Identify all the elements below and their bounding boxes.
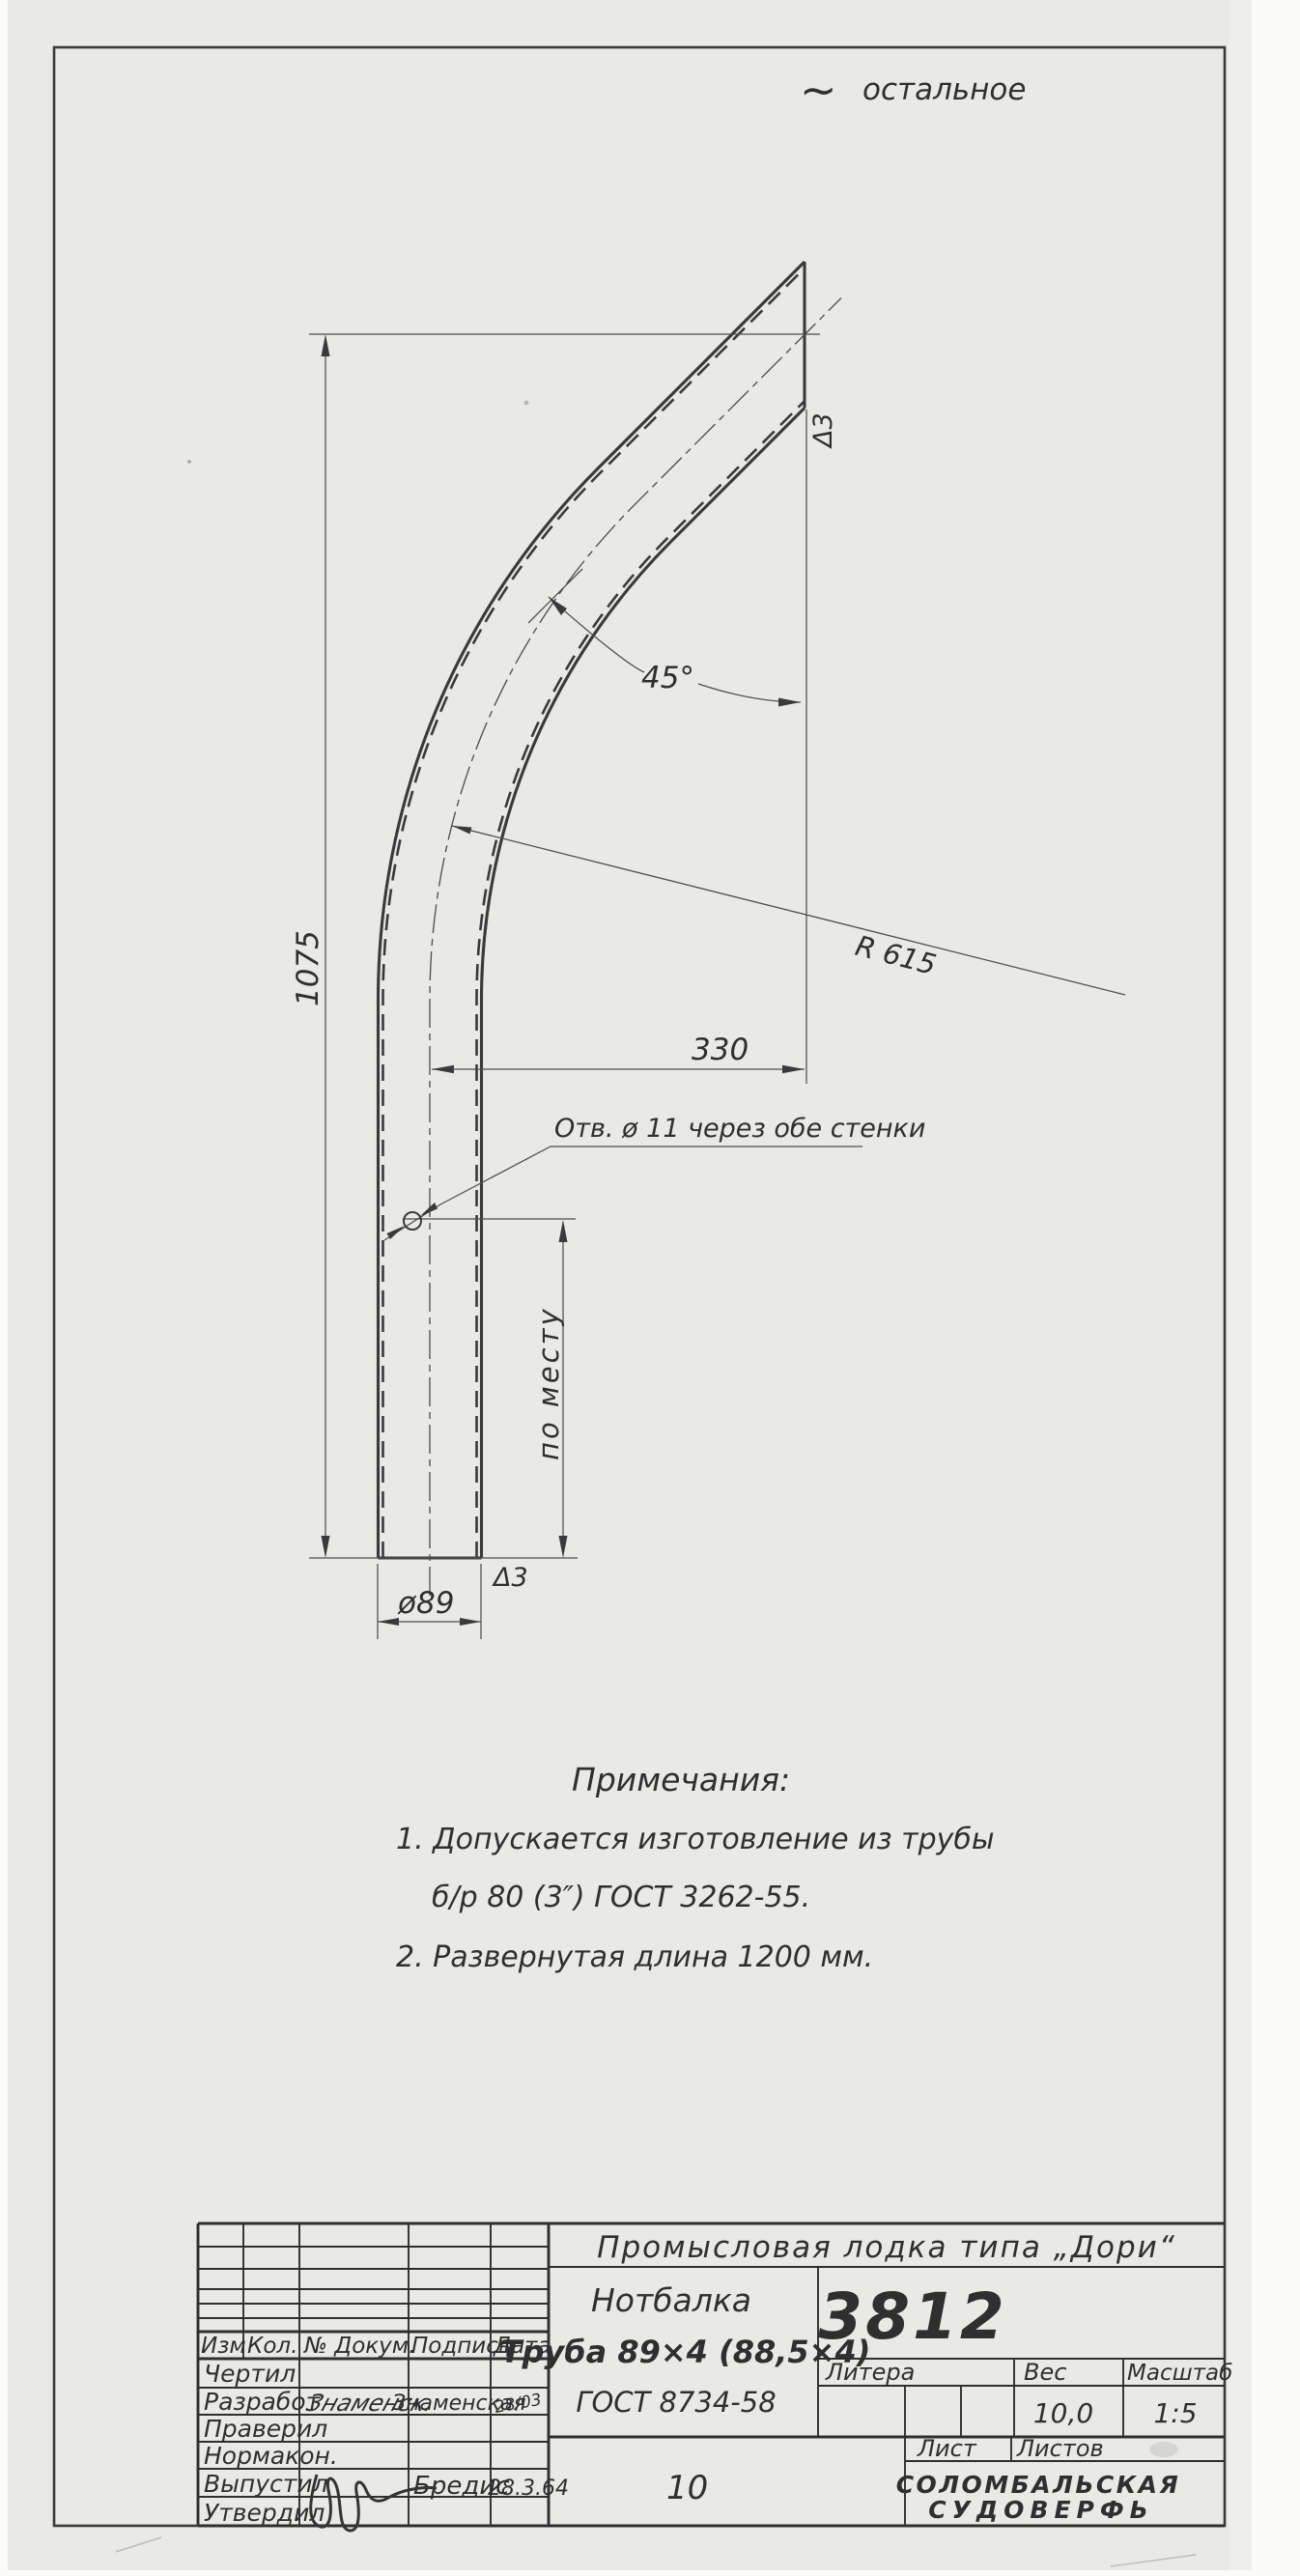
row-label-utverdil: Утвердил bbox=[204, 2499, 325, 2527]
scale-label: Масштаб bbox=[1127, 2361, 1232, 2386]
scanned-drawing-sheet: ∼ остальное bbox=[0, 0, 1300, 2576]
part-spec: Труба 89×4 (88,5×4) bbox=[501, 2334, 871, 2370]
col-header-data: Дата bbox=[493, 2334, 551, 2359]
sheet-number: 10 bbox=[666, 2469, 708, 2507]
row-label-razrabot: Разработ bbox=[204, 2388, 322, 2416]
col-header-izm: Изм bbox=[201, 2334, 246, 2359]
litera-label: Литера bbox=[825, 2359, 915, 2386]
paper-sheet bbox=[8, 0, 1252, 2570]
notes-title: Примечания: bbox=[572, 1761, 790, 1798]
scale-value: 1:5 bbox=[1153, 2397, 1197, 2429]
project-title: Промысловая лодка типа „Дори“ bbox=[597, 2230, 1176, 2265]
sheets-label: Листов bbox=[1016, 2435, 1104, 2462]
note-line-3: 2. Развернутая длина 1200 мм. bbox=[396, 1940, 873, 1974]
vypustil-date: 28.3.64 bbox=[488, 2477, 569, 2501]
finish-mark-top: Δ3 bbox=[808, 412, 838, 449]
dim-text-1075: 1075 bbox=[291, 930, 325, 1006]
dim-text-330: 330 bbox=[692, 1033, 749, 1067]
listov-smudge bbox=[1149, 2442, 1178, 2457]
row-label-vypustil: Выпустил bbox=[204, 2470, 328, 2498]
drawing-canvas: ∼ остальное bbox=[0, 0, 1300, 2576]
row-label-normakon: Нормакон. bbox=[204, 2442, 338, 2470]
weight-value: 10,0 bbox=[1033, 2397, 1093, 2429]
paper-edge bbox=[1229, 0, 1252, 2570]
note-line-1: 1. Допускается изготовление из трубы bbox=[396, 1823, 995, 1856]
roughness-symbol: ∼ bbox=[800, 64, 837, 116]
part-name: Нотбалка bbox=[591, 2281, 751, 2319]
sheet-label: Лист bbox=[917, 2435, 977, 2462]
dim-text-dia89: ø89 bbox=[397, 1586, 454, 1621]
company-name-line1: СОЛОМБАЛЬСКАЯ bbox=[896, 2471, 1181, 2499]
finish-mark-bottom: Δ3 bbox=[492, 1563, 528, 1593]
speck-1 bbox=[187, 460, 191, 464]
dim-text-45: 45° bbox=[641, 661, 694, 695]
part-gost: ГОСТ 8734-58 bbox=[576, 2386, 776, 2419]
note-line-2: б/р 80 (3″) ГОСТ 3262-55. bbox=[432, 1881, 810, 1914]
row-label-chertil: Чертил bbox=[204, 2360, 296, 2388]
hole-note-text: Отв. ø 11 через обе стенки bbox=[554, 1114, 925, 1144]
col-header-kol: Кол. bbox=[247, 2334, 297, 2359]
weight-label: Вес bbox=[1024, 2359, 1066, 2386]
speck-2 bbox=[524, 401, 529, 406]
company-name-line2: СУДОВЕРФЬ bbox=[928, 2496, 1153, 2524]
drawing-number: 3812 bbox=[818, 2279, 1007, 2354]
roughness-label: остальное bbox=[862, 72, 1026, 107]
row-label-proveril: Праверил bbox=[204, 2415, 327, 2443]
dim-text-po-mestu: по месту bbox=[532, 1306, 565, 1460]
col-header-dokum: № Докум. bbox=[302, 2334, 415, 2359]
